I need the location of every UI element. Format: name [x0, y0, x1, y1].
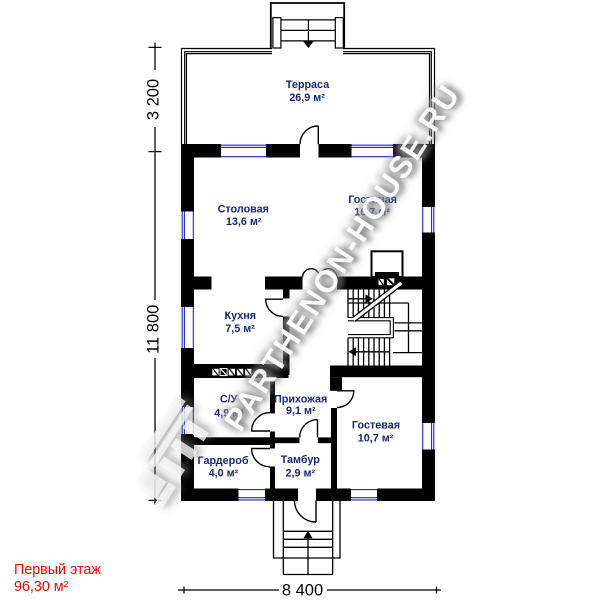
svg-text:13,6 м²: 13,6 м²	[226, 216, 262, 228]
svg-text:Прихожая: Прихожая	[274, 394, 327, 406]
svg-text:Столовая: Столовая	[218, 203, 269, 215]
svg-text:3 200: 3 200	[144, 79, 162, 120]
svg-text:2,9 м²: 2,9 м²	[286, 468, 316, 480]
svg-text:Гостевая: Гостевая	[352, 420, 400, 432]
svg-text:7,5 м²: 7,5 м²	[225, 323, 255, 335]
svg-text:Тамбур: Тамбур	[281, 454, 321, 466]
svg-text:11 800: 11 800	[144, 305, 162, 354]
svg-text:Кухня: Кухня	[225, 310, 257, 322]
svg-text:Терраса: Терраса	[286, 79, 330, 91]
svg-text:8 400: 8 400	[282, 582, 323, 600]
svg-text:26,9 м²: 26,9 м²	[289, 92, 325, 104]
svg-text:10,7 м²: 10,7 м²	[358, 433, 394, 445]
svg-text:9,1 м²: 9,1 м²	[286, 405, 316, 417]
